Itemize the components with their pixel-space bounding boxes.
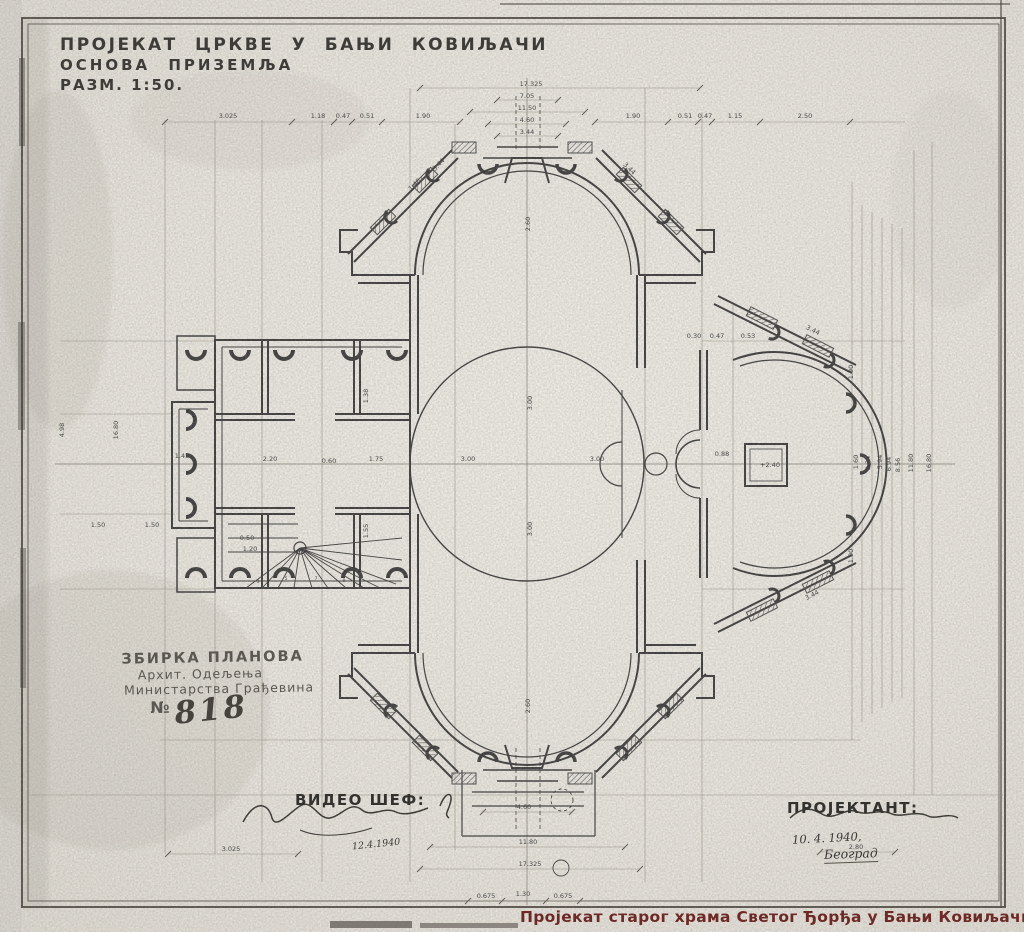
archive-stamp: ЗБИРКА ПЛАНОВА Архит. Одељења Министарст…: [121, 648, 314, 729]
drawing-subtitle: ОСНОВА ПРИЗЕМЉА: [60, 56, 548, 76]
photo-caption: Пројекат старог храма Светог Ђорђа у Бањ…: [520, 908, 940, 926]
title-block: ПРОЈЕКАТ ЦРКВЕ У БАЊИ КОВИЉАЧИ ОСНОВА ПР…: [60, 34, 548, 95]
paper-noise: [22, 18, 1005, 908]
stamp-number-prefix: №: [150, 698, 170, 717]
drawing-title: ПРОЈЕКАТ ЦРКВЕ У БАЊИ КОВИЉАЧИ: [60, 34, 548, 56]
stamp-number: 818: [173, 688, 250, 732]
designer-label: ПРОЈЕКТАНТ:: [787, 799, 919, 817]
scanned-drawing-sheet: 17.3257.0511.504.603.443.0251.180.470.51…: [0, 0, 1024, 932]
designer-place: Београд: [824, 845, 878, 864]
seen-by-label: ВИДЕО ШЕФ:: [295, 791, 425, 809]
stamp-line-1: ЗБИРКА ПЛАНОВА: [121, 648, 313, 667]
drawing-scale: РАЗМ. 1:50.: [60, 76, 548, 96]
floor-plan-drawing: 17.3257.0511.504.603.443.0251.180.470.51…: [0, 0, 1024, 932]
